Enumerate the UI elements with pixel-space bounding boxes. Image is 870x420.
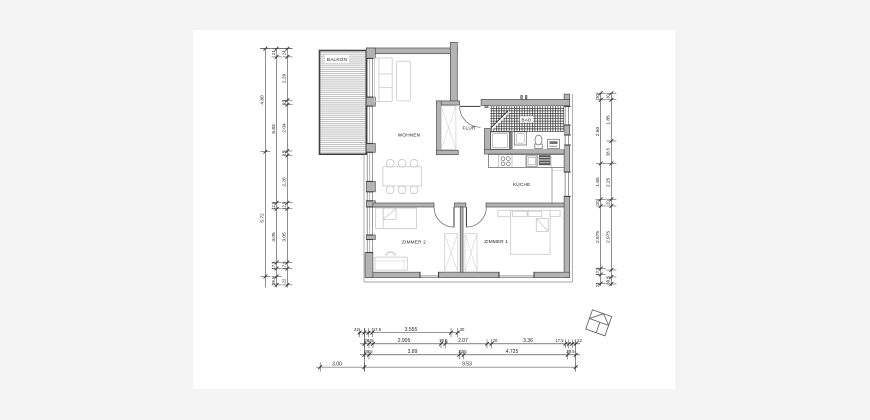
svg-text:22: 22 [577, 338, 582, 343]
svg-text:38.5: 38.5 [606, 147, 611, 156]
svg-text:9.53: 9.53 [462, 361, 472, 367]
svg-text:2.04: 2.04 [282, 123, 288, 133]
svg-text:4.725: 4.725 [506, 349, 519, 355]
svg-text:30: 30 [595, 94, 600, 99]
svg-text:2.29: 2.29 [282, 74, 288, 84]
svg-text:3.89: 3.89 [408, 349, 418, 355]
svg-text:ZIMMER 1: ZIMMER 1 [484, 239, 508, 244]
svg-text:15: 15 [282, 150, 287, 155]
svg-text:17.5: 17.5 [373, 327, 382, 332]
svg-text:20: 20 [595, 200, 600, 205]
svg-text:24: 24 [271, 50, 276, 55]
svg-text:30: 30 [606, 94, 611, 99]
svg-text:4.80: 4.80 [260, 95, 266, 105]
svg-text:39.5: 39.5 [566, 349, 575, 354]
svg-text:2.905: 2.905 [398, 338, 411, 344]
svg-text:3.36: 3.36 [523, 338, 533, 344]
svg-text:17.5: 17.5 [271, 261, 276, 270]
svg-text:ZIMMER 2: ZIMMER 2 [402, 239, 426, 244]
svg-text:2.975: 2.975 [595, 231, 601, 243]
svg-text:BAD: BAD [521, 118, 532, 123]
svg-text:5.72: 5.72 [260, 213, 266, 223]
svg-text:20: 20 [606, 200, 611, 205]
svg-text:2.07: 2.07 [458, 338, 468, 344]
svg-text:2.975: 2.975 [606, 231, 612, 243]
svg-text:39.5: 39.5 [364, 338, 373, 343]
svg-text:22: 22 [354, 327, 359, 332]
svg-text:6.83: 6.83 [271, 124, 277, 134]
svg-text:15: 15 [282, 100, 287, 105]
svg-text:1.85: 1.85 [606, 115, 612, 125]
svg-text:39.5: 39.5 [364, 349, 373, 354]
svg-text:32.5: 32.5 [458, 349, 467, 354]
svg-text:22: 22 [595, 282, 600, 287]
svg-text:2.26: 2.26 [282, 177, 288, 187]
svg-text:17.5: 17.5 [595, 267, 600, 276]
svg-text:39.5: 39.5 [606, 276, 611, 285]
svg-text:3.00: 3.00 [332, 361, 342, 367]
svg-text:KÜCHE: KÜCHE [513, 181, 530, 187]
svg-text:12.5: 12.5 [282, 201, 287, 210]
svg-text:17.5: 17.5 [555, 338, 564, 343]
svg-text:3.05: 3.05 [282, 232, 288, 242]
svg-text:1.65: 1.65 [595, 177, 601, 187]
svg-text:WOHNEN: WOHNEN [398, 133, 421, 138]
svg-text:12.5: 12.5 [271, 201, 276, 210]
svg-text:20: 20 [493, 338, 498, 343]
svg-text:FLUR: FLUR [462, 126, 475, 131]
svg-text:2.60: 2.60 [595, 127, 601, 137]
svg-text:22: 22 [282, 278, 287, 283]
svg-text:24: 24 [282, 50, 287, 55]
svg-text:39.5: 39.5 [271, 276, 276, 285]
svg-text:20.5: 20.5 [439, 338, 448, 343]
svg-text:2.25: 2.25 [606, 178, 612, 188]
svg-text:3.555: 3.555 [405, 327, 418, 333]
svg-text:17.5: 17.5 [282, 261, 287, 270]
svg-text:3.05: 3.05 [271, 232, 277, 242]
svg-text:BALKON: BALKON [327, 57, 347, 62]
svg-text:30: 30 [460, 327, 465, 332]
